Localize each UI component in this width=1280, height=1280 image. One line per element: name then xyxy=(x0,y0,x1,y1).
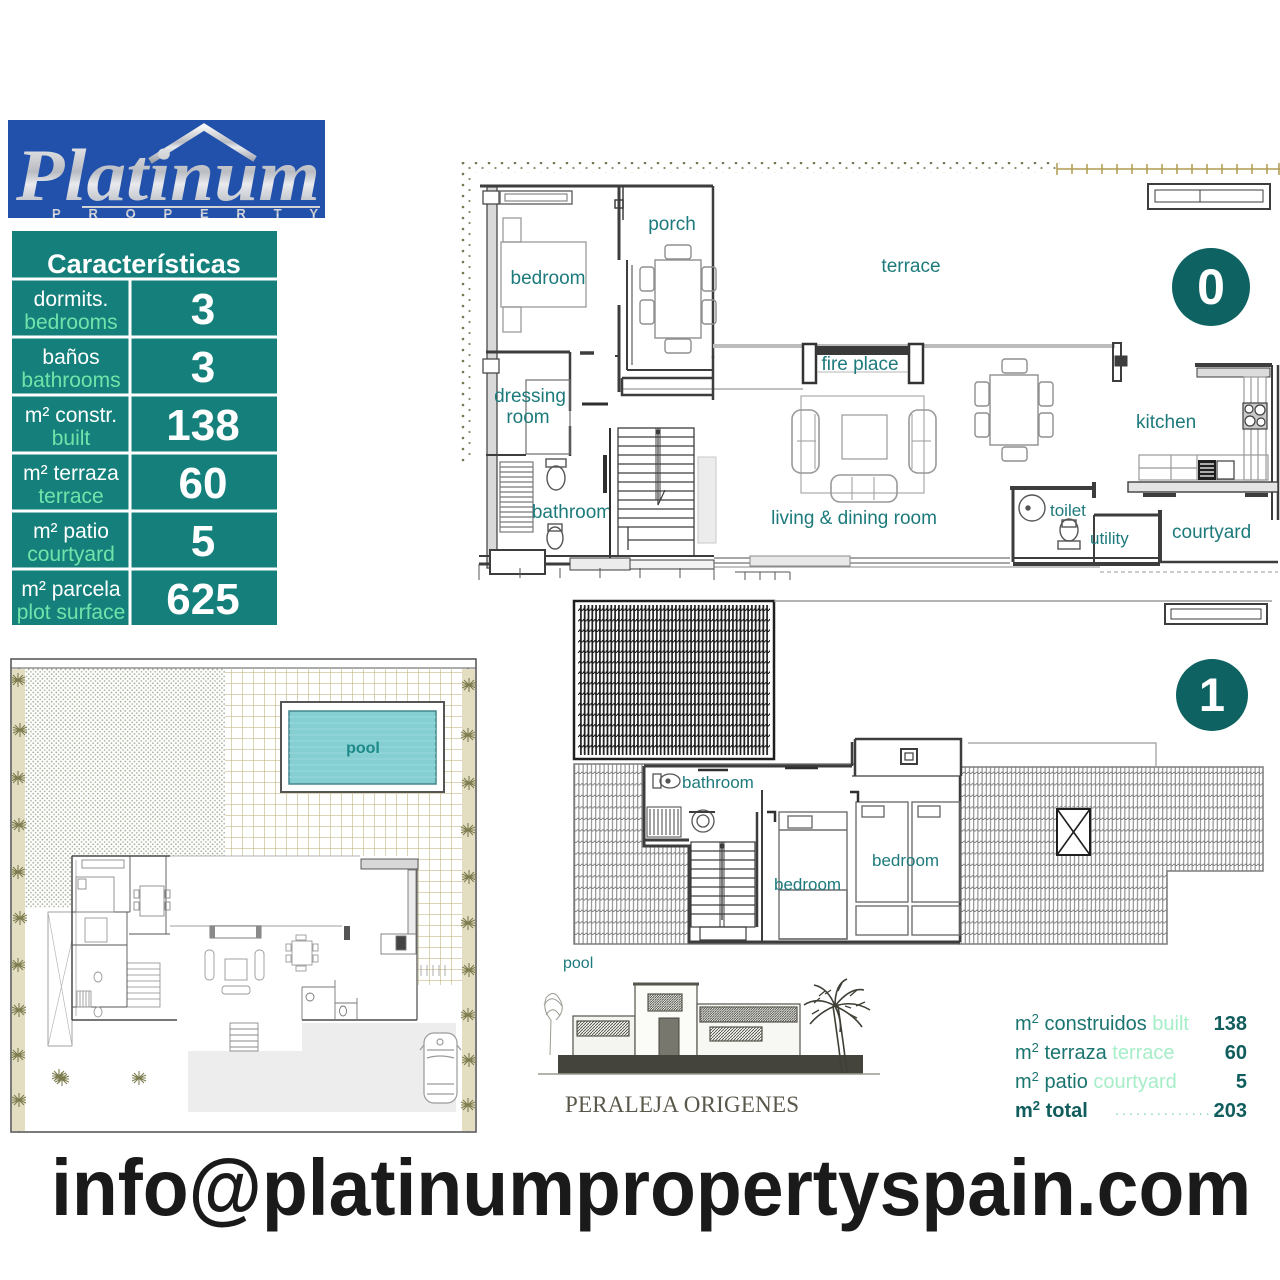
svg-text:3: 3 xyxy=(191,343,215,392)
svg-text:baños: baños xyxy=(42,346,99,369)
svg-text:5: 5 xyxy=(1236,1071,1247,1093)
svg-text:kitchen: kitchen xyxy=(1136,412,1196,433)
svg-text:5: 5 xyxy=(191,517,215,566)
svg-text:625: 625 xyxy=(166,575,239,624)
svg-text:Platinum: Platinum xyxy=(15,135,320,217)
svg-text:pool: pool xyxy=(346,740,380,757)
svg-text:bedrooms: bedrooms xyxy=(24,311,117,334)
svg-text:PERALEJA ORIGENES: PERALEJA ORIGENES xyxy=(565,1092,799,1117)
svg-text:m2 total: m2 total xyxy=(1015,1098,1088,1122)
svg-text:60: 60 xyxy=(1225,1042,1247,1064)
svg-text:60: 60 xyxy=(179,459,228,508)
svg-text:porch: porch xyxy=(648,214,696,235)
svg-text:terrace: terrace xyxy=(881,256,940,277)
svg-text:bedroom: bedroom xyxy=(774,875,841,894)
svg-text:fire place: fire place xyxy=(821,354,898,375)
svg-text:m² parcela: m² parcela xyxy=(21,578,121,601)
svg-text:room: room xyxy=(506,407,549,428)
svg-text:m² terraza: m² terraza xyxy=(23,462,119,485)
svg-text:toilet: toilet xyxy=(1050,501,1086,520)
svg-text:m2 patio courtyard: m2 patio courtyard xyxy=(1015,1069,1177,1093)
svg-text:courtyard: courtyard xyxy=(27,543,115,566)
svg-text:plot surface: plot surface xyxy=(17,601,126,624)
svg-text:203: 203 xyxy=(1214,1100,1247,1122)
svg-text:m² constr.: m² constr. xyxy=(25,404,117,427)
svg-text:dormits.: dormits. xyxy=(34,288,109,311)
svg-text:138: 138 xyxy=(166,401,239,450)
svg-text:bedroom: bedroom xyxy=(511,268,586,289)
svg-text:1: 1 xyxy=(1199,668,1225,721)
svg-text:dressing: dressing xyxy=(494,386,566,407)
svg-text:bedroom: bedroom xyxy=(872,851,939,870)
svg-text:m2 terraza terrace: m2 terraza terrace xyxy=(1015,1040,1175,1064)
svg-text:bathroom: bathroom xyxy=(682,773,754,792)
svg-text:built: built xyxy=(52,427,91,450)
svg-text:bathrooms: bathrooms xyxy=(21,369,120,392)
svg-text:m2 construidos built: m2 construidos built xyxy=(1015,1011,1189,1035)
svg-text:m² patio: m² patio xyxy=(33,520,109,543)
svg-text:0: 0 xyxy=(1197,259,1225,315)
svg-text:living & dining room: living & dining room xyxy=(771,508,937,529)
svg-text:terrace: terrace xyxy=(38,485,103,508)
svg-text:utility: utility xyxy=(1090,529,1129,548)
svg-text:Características: Características xyxy=(47,249,241,279)
svg-text:................: ................ xyxy=(1115,1102,1226,1119)
svg-text:138: 138 xyxy=(1214,1013,1247,1035)
svg-text:bathroom: bathroom xyxy=(532,502,612,523)
svg-text:3: 3 xyxy=(191,285,215,334)
svg-text:courtyard: courtyard xyxy=(1172,522,1251,543)
